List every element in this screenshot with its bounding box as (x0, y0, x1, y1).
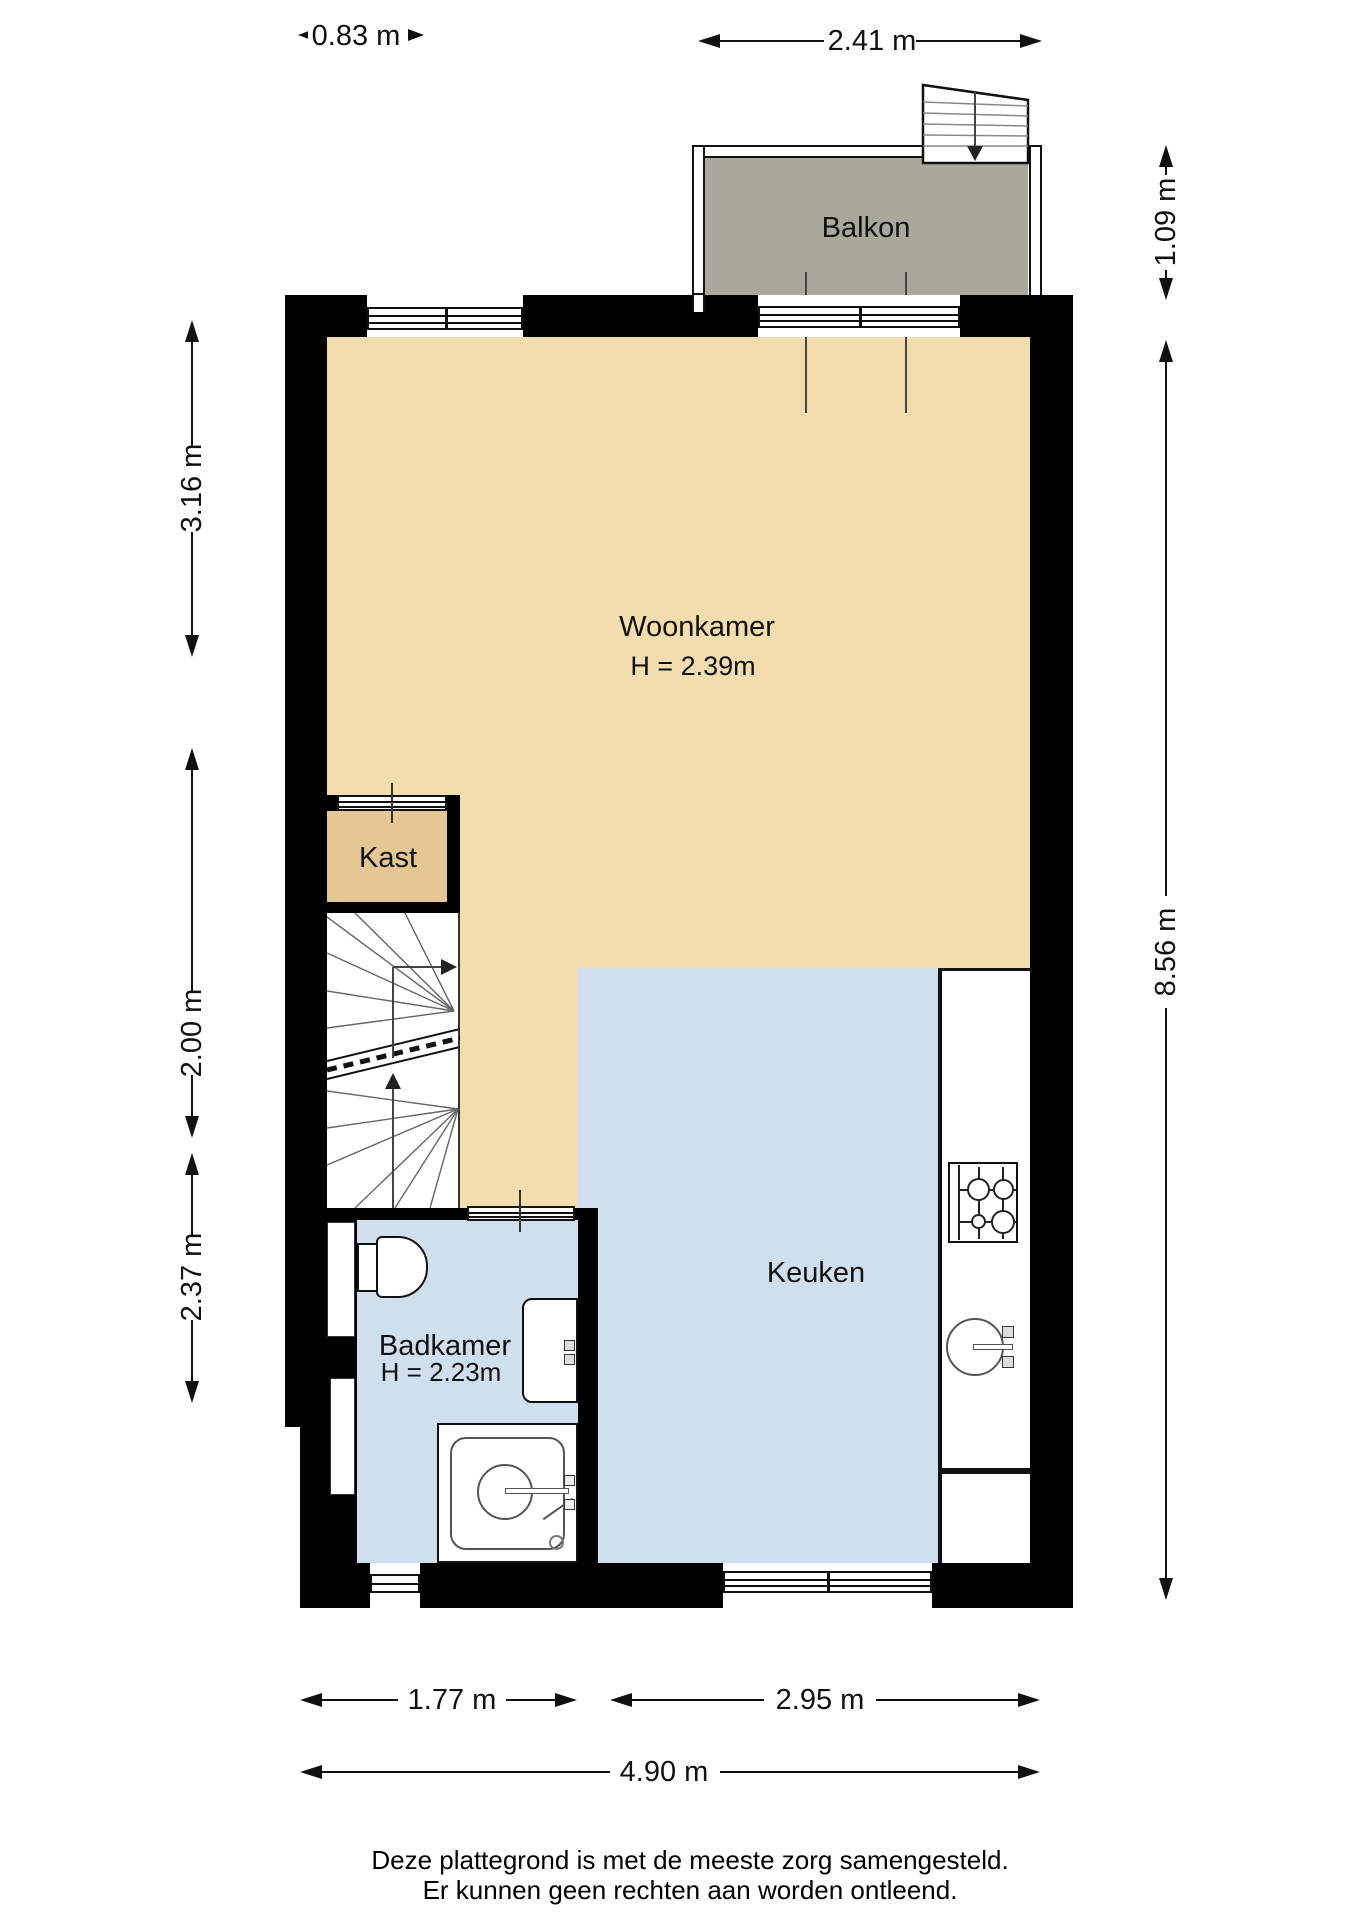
dim-490-line-left (318, 1771, 610, 1773)
dim-856-label: 8.56 m (1148, 892, 1184, 1012)
stove-burner-2 (993, 1179, 1014, 1200)
dim-856-arrow-bottom (1159, 1578, 1173, 1600)
kitchen-faucet-handle-top (1002, 1326, 1014, 1338)
balkon-label: Balkon (766, 212, 966, 244)
dim-083-arrow-right (408, 29, 424, 41)
wall-niche-upper (327, 1222, 355, 1337)
badkamer-door-icon (467, 1206, 575, 1221)
dim-316-label: 3.16 m (174, 428, 210, 548)
stairs-icon (327, 913, 460, 1208)
wall-right (1030, 295, 1073, 1608)
window-kitchen-icon (723, 1571, 932, 1593)
exterior-stairs-icon (920, 82, 1032, 168)
wall-bottom-3 (932, 1563, 1073, 1608)
dim-200-line-bottom (191, 1075, 193, 1116)
dim-109-line-bottom (1165, 270, 1167, 278)
dim-295-label: 2.95 m (772, 1682, 868, 1718)
keuken-label: Keuken (716, 1257, 916, 1289)
balcony-wall-joint (692, 295, 705, 312)
dim-241-line-right (916, 40, 1024, 42)
kast-wall-bottom (327, 902, 460, 913)
dim-237-line-bottom (191, 1320, 193, 1381)
dim-177-line-left (318, 1699, 398, 1701)
dim-177-arrow-right (555, 1693, 577, 1707)
hall-floor-strip (460, 968, 578, 1208)
kast-wall-top-stub (327, 795, 337, 811)
kitchen-sink-faucet (973, 1344, 1013, 1350)
dim-295-arrow-right (1018, 1693, 1040, 1707)
kast-door-tick (391, 783, 393, 823)
washbasin-faucet-icon (564, 1340, 575, 1351)
balcony-door-line-left (805, 272, 807, 413)
stairs-wall-bottom (327, 1208, 467, 1220)
kast-label: Kast (288, 842, 488, 874)
footer-disclaimer-line2: Er kunnen geen rechten aan worden ontlee… (290, 1876, 1090, 1904)
wall-bottom-1 (300, 1563, 370, 1608)
balcony-wall-left (692, 145, 705, 295)
badkamer-keuken-wall (578, 1220, 598, 1563)
dim-241-arrow-right (1020, 34, 1042, 48)
dim-109-arrow-bottom (1159, 278, 1173, 300)
toilet-tank (357, 1243, 378, 1292)
wall-bottom-2 (420, 1563, 723, 1608)
dim-295-line-left (628, 1699, 764, 1701)
dim-241-label: 2.41 m (824, 23, 920, 59)
kitchen-faucet-handle-bottom (1002, 1356, 1014, 1368)
wall-top-2 (523, 295, 758, 337)
dim-490-line-right (720, 1771, 1022, 1773)
dim-490-arrow-right (1018, 1765, 1040, 1779)
dim-237-label: 2.37 m (174, 1217, 210, 1337)
dim-856-line-bottom (1165, 1008, 1167, 1578)
dim-295-line-right (876, 1699, 1022, 1701)
badkamer-door-tick (519, 1190, 521, 1232)
woonkamer-floor (327, 337, 1030, 795)
footer-disclaimer-line1: Deze plattegrond is met de meeste zorg s… (290, 1846, 1090, 1874)
shower-arm (505, 1488, 569, 1494)
balcony-door-icon (758, 306, 960, 328)
dim-109-label: 1.09 m (1148, 162, 1184, 282)
dim-316-arrow-bottom (185, 635, 199, 657)
dim-316-line-bottom (191, 532, 193, 635)
dim-241-line-left (716, 40, 828, 42)
dim-200-arrow-bottom (185, 1116, 199, 1138)
kitchen-counter-divider (942, 1468, 1030, 1474)
floorplan: Balkon Woonkamer H = 2.39m Kast Keuken B… (0, 0, 1358, 1920)
woonkamer-label: Woonkamer (597, 611, 797, 643)
dim-083-label: 0.83 m (308, 18, 404, 54)
shower-hinge-top (564, 1475, 575, 1486)
window-bathroom-icon (370, 1574, 420, 1593)
dim-237-arrow-bottom (185, 1381, 199, 1403)
stove-burner-1 (967, 1178, 990, 1201)
shower-hinge-bottom (564, 1499, 575, 1510)
dim-856-arrow-top (1159, 340, 1173, 362)
woonkamer-height-label: H = 2.39m (593, 651, 793, 681)
washbasin-faucet-icon2 (564, 1354, 575, 1365)
shower-drain-icon (549, 1535, 564, 1550)
window-top-icon (367, 307, 523, 330)
dim-177-label: 1.77 m (404, 1682, 500, 1718)
wall-niche-lower (330, 1378, 355, 1495)
wall-left-upper (285, 295, 327, 1220)
stove-knob-strip (958, 1165, 960, 1240)
badkamer-door-stub (575, 1208, 598, 1220)
balcony-wall-right (1029, 145, 1042, 303)
dim-856-line-top (1165, 362, 1167, 896)
dim-200-line-top (191, 770, 193, 992)
dim-200-arrow-top (185, 748, 199, 770)
dim-177-line-right (506, 1699, 559, 1701)
badkamer-height-label: H = 2.23m (341, 1358, 541, 1386)
woonkamer-floor-lower (460, 795, 1030, 968)
stove-burner-4 (991, 1210, 1015, 1234)
balcony-door-line-right (905, 272, 907, 413)
stove-burner-3 (971, 1214, 986, 1229)
dim-316-arrow-top (185, 320, 199, 342)
dim-490-label: 4.90 m (616, 1754, 712, 1790)
dim-237-arrow-top (185, 1153, 199, 1175)
